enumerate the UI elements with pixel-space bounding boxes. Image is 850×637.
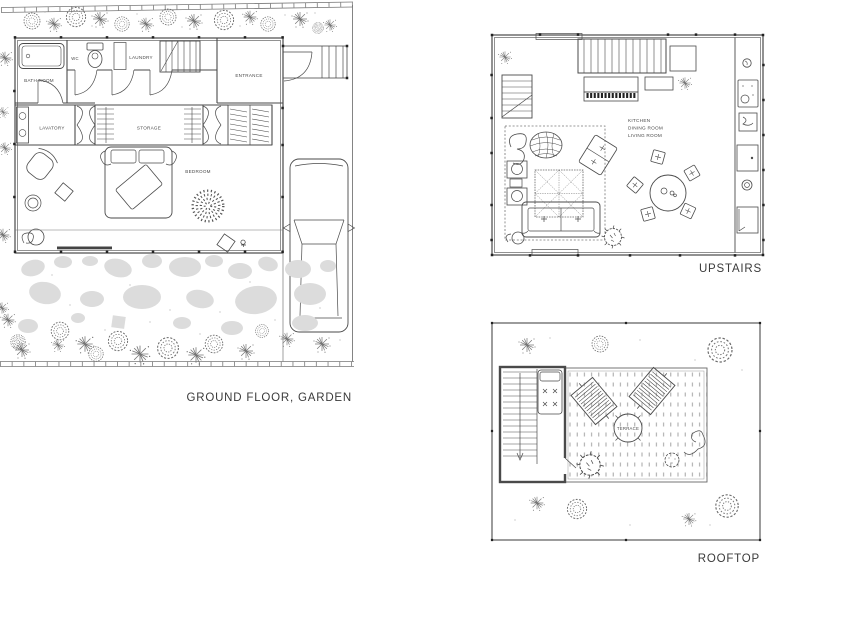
room-label-bath: BATH ROOM [24, 78, 54, 83]
pouf [25, 195, 41, 211]
rug [535, 170, 583, 217]
small-plant [679, 77, 692, 89]
fence-top [1, 2, 353, 13]
ground-floor-caption: GROUND FLOOR, GARDEN [140, 392, 352, 404]
room-label-bedroom: BEDROOM [185, 169, 211, 174]
fence-bottom [0, 362, 354, 367]
lavatory-sink [17, 107, 29, 143]
floor-cushion [55, 183, 73, 201]
room-label-dining: DINING ROOM [628, 126, 663, 131]
main-staircase [578, 39, 666, 73]
upstairs-walls [492, 34, 763, 256]
knit-pouf [530, 132, 562, 158]
bed [101, 147, 177, 218]
cooktop-circle [742, 180, 752, 190]
toilet [87, 43, 103, 68]
bathtub [19, 44, 64, 69]
washer [114, 43, 126, 70]
room-label-laundry: LAUNDRY [129, 55, 153, 60]
ground-floor-plan: BATH ROOM WC LAUNDRY ENTRANCE LAVATORY S… [0, 0, 380, 415]
corner-plant [499, 51, 512, 63]
coat-closet [228, 105, 272, 145]
door-swings [38, 70, 172, 103]
side-staircase [502, 75, 532, 118]
stove [739, 113, 757, 131]
refrigerator [737, 207, 758, 233]
deck-plant [576, 451, 603, 478]
room-label-lavatory: LAVATORY [39, 126, 64, 131]
hanging-chair [509, 134, 526, 165]
coffee-table [506, 232, 524, 244]
living-plant [602, 226, 625, 249]
room-label-kitchen: KITCHEN [628, 118, 650, 123]
stool [217, 234, 235, 252]
roof-bench [538, 370, 562, 414]
entrance-porch [283, 46, 347, 81]
av-shelf [507, 161, 527, 205]
bedroom-plant [193, 191, 224, 222]
lounge-armchair [578, 135, 617, 176]
sofa [522, 202, 600, 237]
side-table [22, 229, 44, 245]
rooftop-plan: TERRACE [480, 310, 780, 550]
room-label-terrace: TERRACE [617, 426, 639, 431]
piano [584, 77, 638, 101]
oven [737, 145, 758, 171]
room-label-entrance: ENTRANCE [235, 73, 262, 78]
staircase [160, 41, 200, 72]
console-table [645, 77, 673, 90]
dining-table [650, 175, 686, 211]
upstairs-plan: KITCHEN DINING ROOM LIVING ROOM [480, 25, 780, 270]
garden-tap [241, 240, 246, 247]
room-label-wc: WC [71, 56, 78, 61]
rooftop-caption: ROOFTOP [600, 553, 760, 565]
garden-stones [18, 254, 336, 335]
room-label-storage: STORAGE [137, 126, 161, 131]
kitchen-sink [738, 80, 758, 107]
roof-staircase [503, 369, 537, 464]
stair-closet [670, 46, 696, 71]
bedroom-armchair [23, 146, 59, 183]
kitchen-counter [735, 38, 758, 253]
threshold [57, 247, 112, 250]
room-label-living: LIVING ROOM [628, 133, 662, 138]
drawing-sheet: BATH ROOM WC LAUNDRY ENTRANCE LAVATORY S… [0, 0, 850, 637]
car [284, 159, 355, 332]
upstairs-caption: UPSTAIRS [600, 263, 762, 275]
